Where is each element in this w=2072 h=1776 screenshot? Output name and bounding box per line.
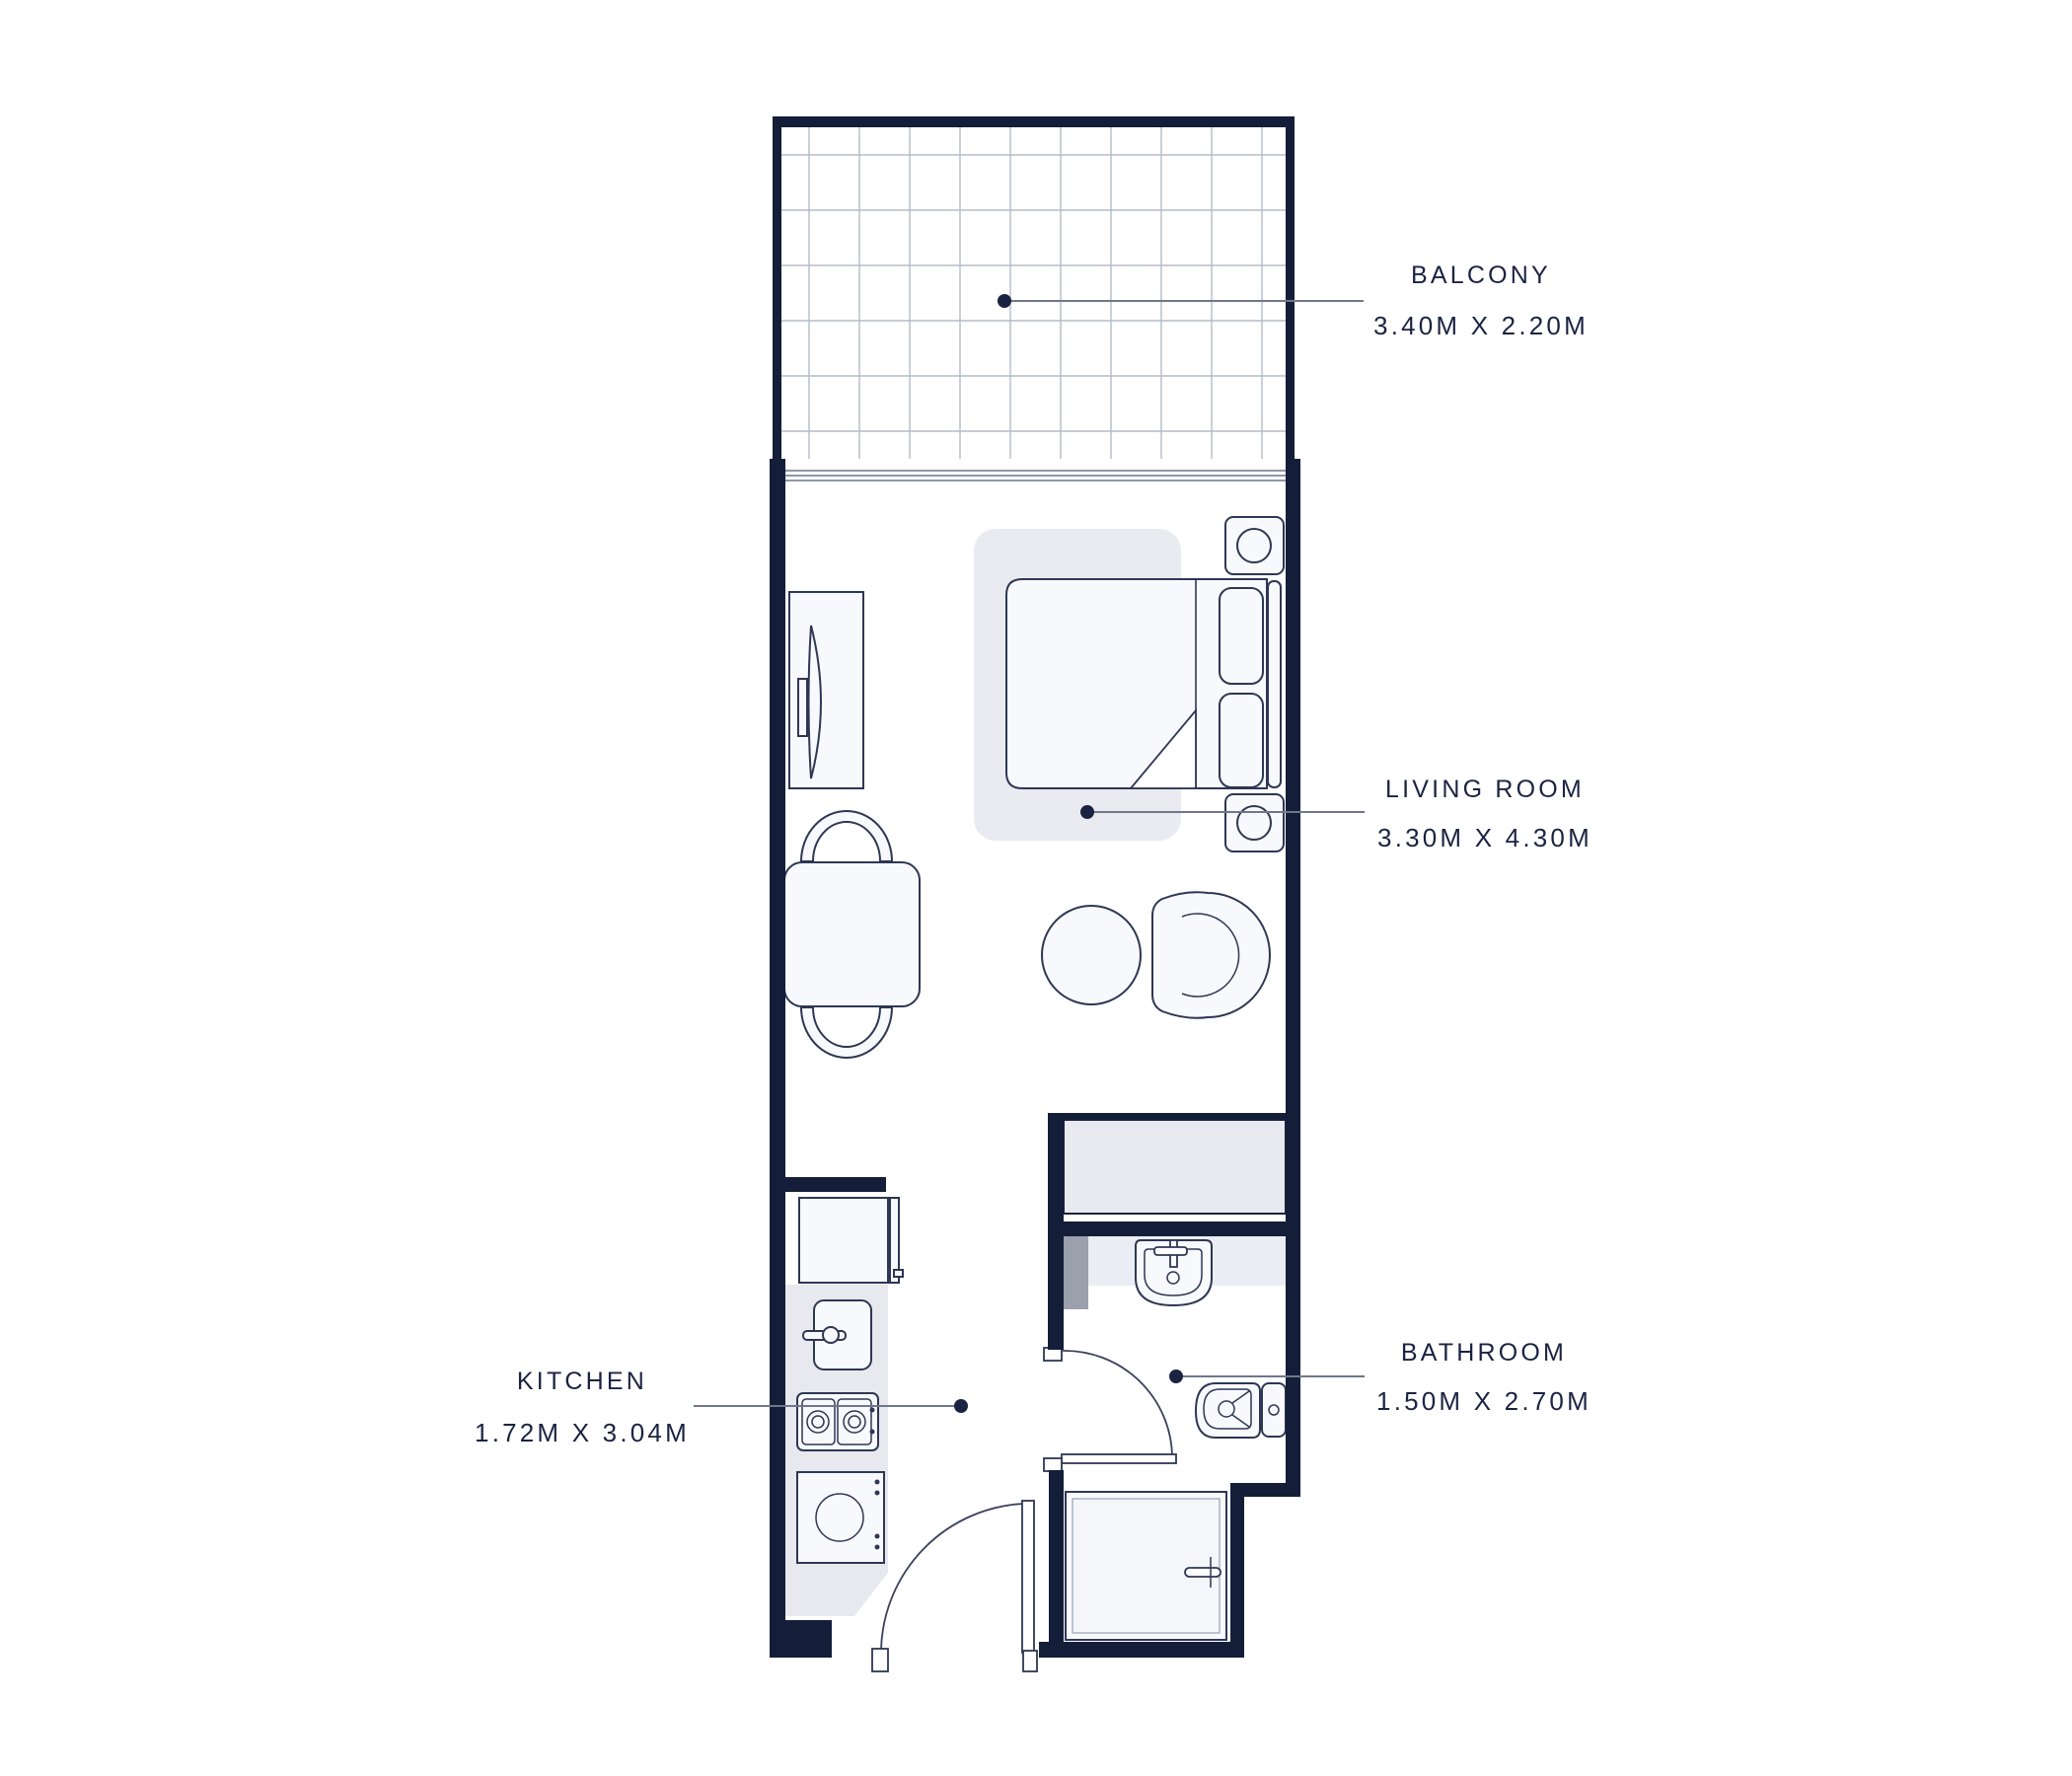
kitchen-sink-icon xyxy=(803,1300,871,1369)
tile-grid-vertical-lines xyxy=(809,127,1262,459)
floor-plan-page: BALCONY 3.40M X 2.20M LIVING ROOM 3.30M … xyxy=(0,0,2072,1776)
balcony-left-wall xyxy=(773,127,781,459)
door-handle-icon xyxy=(1185,1568,1221,1577)
dining-table xyxy=(784,862,920,1006)
bathroom-area xyxy=(1044,1120,1286,1471)
tile-grid-horizontal-lines xyxy=(781,155,1286,431)
room-label-kitchen: KITCHEN xyxy=(517,1368,647,1395)
leader-dot xyxy=(1169,1369,1183,1383)
room-label-living-room: LIVING ROOM xyxy=(1385,776,1585,803)
tv-bracket xyxy=(798,679,807,736)
room-labels: BALCONY 3.40M X 2.20M LIVING ROOM 3.30M … xyxy=(475,261,1592,1447)
bathroom-door-leaf xyxy=(1062,1454,1176,1463)
bathroom-sink-icon xyxy=(1136,1240,1212,1305)
headboard xyxy=(1268,581,1281,787)
living-room-area xyxy=(784,517,1284,1058)
pillow xyxy=(1220,588,1263,684)
table-lamp-icon xyxy=(1237,529,1271,562)
room-dimensions-bathroom: 1.50M X 2.70M xyxy=(1376,1386,1591,1416)
toilet-icon xyxy=(1196,1383,1286,1438)
bathroom-inner-wall xyxy=(1048,1221,1291,1236)
kitchen-area xyxy=(785,1198,1037,1671)
room-dimensions-balcony: 3.40M X 2.20M xyxy=(1373,311,1589,340)
floor-plan-svg: BALCONY 3.40M X 2.20M LIVING ROOM 3.30M … xyxy=(0,0,2072,1776)
leader-dot xyxy=(954,1399,968,1413)
dining-chair-icon xyxy=(801,811,892,861)
armchair-body xyxy=(1152,892,1270,1018)
shower-partition xyxy=(1064,1236,1088,1309)
fridge-cabinet xyxy=(799,1198,903,1283)
closet-left-wall xyxy=(1049,1470,1064,1658)
dining-set xyxy=(784,811,920,1058)
pillow xyxy=(1220,694,1263,787)
wardrobe xyxy=(1066,1492,1226,1640)
shower xyxy=(1064,1120,1286,1214)
right-step-wall xyxy=(1230,1483,1300,1497)
room-label-balcony: BALCONY xyxy=(1411,261,1551,289)
door-jamb xyxy=(1044,1458,1062,1471)
door-jamb xyxy=(1023,1651,1037,1671)
closet-right-wall xyxy=(1230,1497,1244,1642)
bathroom-door-swing-icon xyxy=(1044,1348,1176,1471)
room-label-bathroom: BATHROOM xyxy=(1401,1339,1567,1367)
window-glazing xyxy=(785,471,1286,481)
pouf xyxy=(1042,906,1141,1004)
kitchen-top-wall xyxy=(770,1177,886,1192)
room-dimensions-living-room: 3.30M X 4.30M xyxy=(1377,823,1592,852)
entry-door-leaf xyxy=(1022,1501,1034,1653)
leader-dot xyxy=(1080,805,1094,819)
room-dimensions-kitchen: 1.72M X 3.04M xyxy=(475,1418,690,1447)
door-jamb xyxy=(872,1649,888,1671)
balcony-top-wall xyxy=(773,116,1295,127)
leader-dot xyxy=(998,294,1011,308)
balcony-right-wall xyxy=(1286,127,1295,459)
balcony-tile-grid xyxy=(781,127,1286,459)
left-wall xyxy=(770,459,785,1192)
wardrobe-panel xyxy=(1073,1499,1220,1633)
toilet-tank xyxy=(1262,1383,1286,1437)
stove-icon xyxy=(797,1393,878,1450)
bottom-wall xyxy=(1039,1642,1244,1658)
dining-chair-icon xyxy=(801,1007,892,1058)
bathroom-top-wall xyxy=(1048,1113,1286,1120)
entry-door-swing-icon xyxy=(872,1501,1037,1671)
balcony-area xyxy=(773,116,1295,481)
armchair-icon xyxy=(1152,892,1270,1018)
bottom-left-corner-wall xyxy=(770,1620,832,1658)
bed-icon xyxy=(1006,579,1281,788)
right-wall xyxy=(1286,459,1300,1483)
washing-machine-icon xyxy=(797,1472,884,1563)
